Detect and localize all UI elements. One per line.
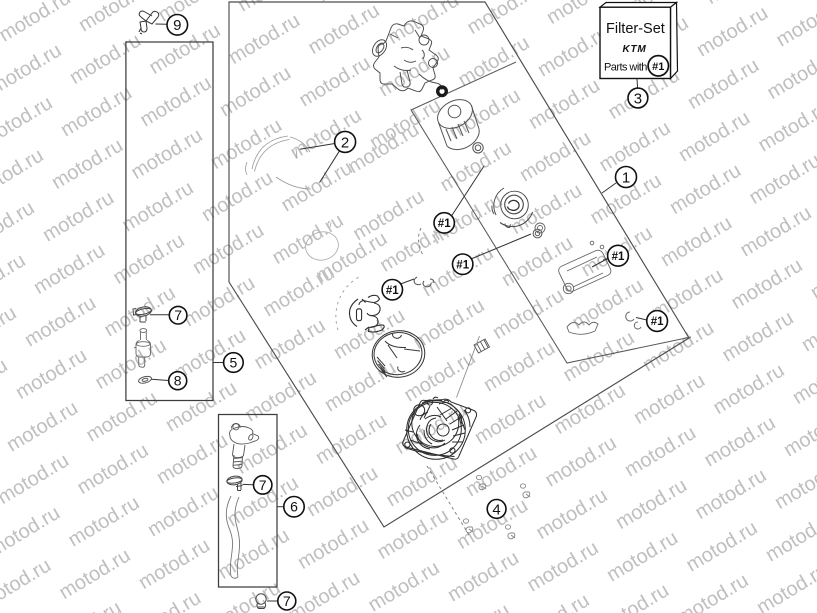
svg-text:#1: #1: [438, 218, 451, 230]
svg-text:8: 8: [174, 373, 182, 389]
svg-text:#1: #1: [651, 316, 664, 328]
svg-text:#1: #1: [612, 251, 625, 263]
svg-text:7: 7: [174, 307, 182, 323]
svg-text:Filter-Set: Filter-Set: [606, 21, 665, 37]
svg-text:3: 3: [634, 90, 642, 107]
svg-text:7: 7: [259, 477, 267, 493]
svg-text:Parts with: Parts with: [604, 61, 647, 73]
svg-text:9: 9: [173, 17, 181, 34]
svg-text:1: 1: [622, 169, 630, 186]
svg-text:5: 5: [230, 355, 238, 371]
svg-text:7: 7: [283, 593, 291, 609]
svg-text:2: 2: [341, 134, 349, 151]
svg-text:4: 4: [492, 501, 500, 518]
svg-text:KTM: KTM: [622, 44, 646, 55]
svg-text:#1: #1: [652, 61, 664, 73]
svg-text:#1: #1: [386, 285, 399, 297]
svg-text:#1: #1: [456, 259, 469, 271]
svg-text:6: 6: [290, 499, 298, 515]
